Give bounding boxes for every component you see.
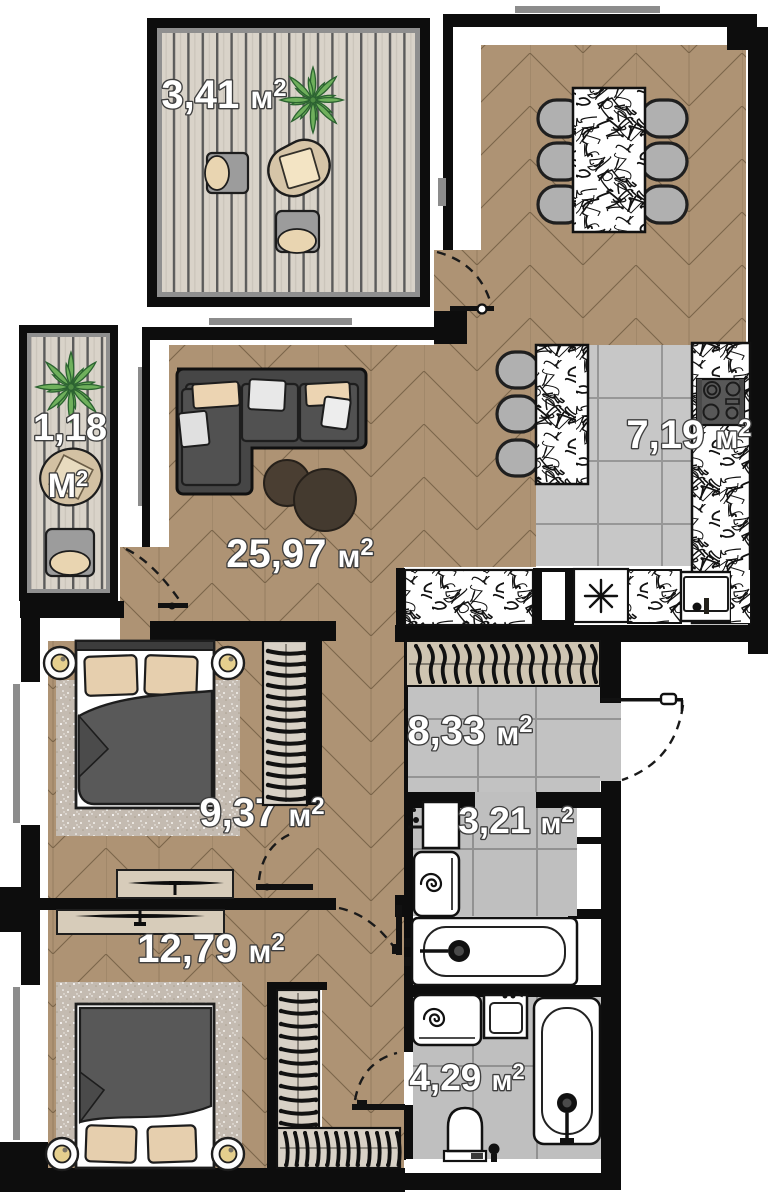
svg-text:8,33 м2: 8,33 м2 — [407, 709, 532, 753]
svg-text:3,41 м2: 3,41 м2 — [161, 73, 286, 117]
svg-text:7,19 м2: 7,19 м2 — [626, 413, 751, 457]
svg-text:1,18: 1,18 — [33, 407, 107, 449]
svg-text:12,79 м2: 12,79 м2 — [137, 927, 285, 971]
svg-text:25,97 м2: 25,97 м2 — [226, 532, 374, 576]
